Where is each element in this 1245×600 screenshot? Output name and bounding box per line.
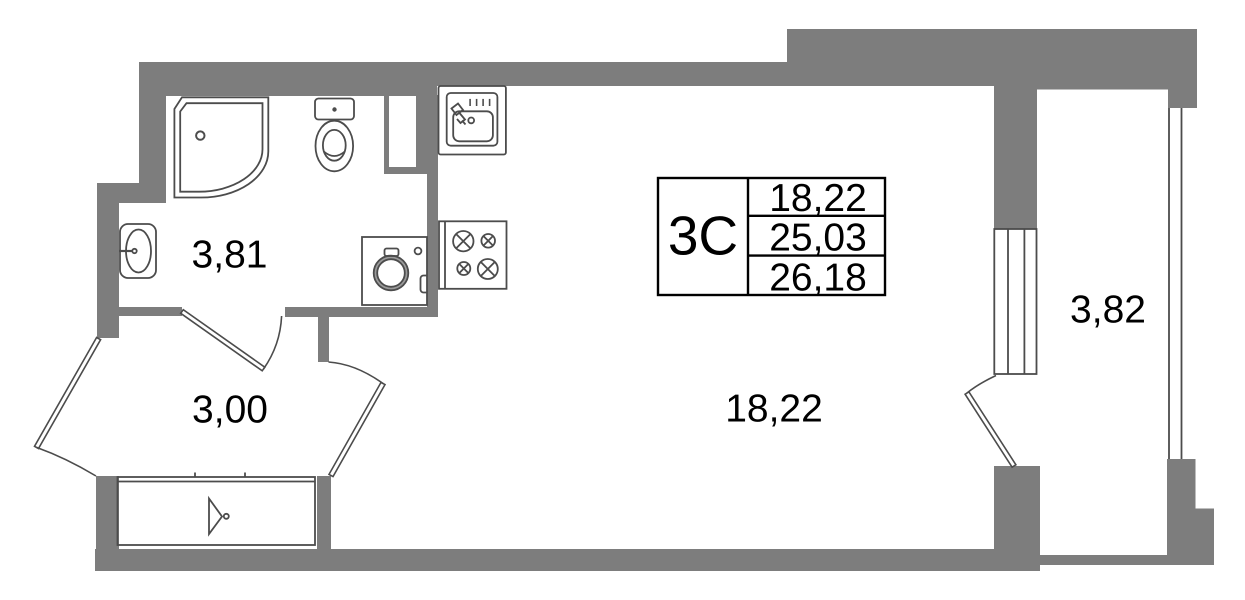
svg-text:3,00: 3,00 (192, 389, 268, 432)
svg-text:26,18: 26,18 (769, 256, 867, 299)
svg-text:18,22: 18,22 (725, 387, 823, 430)
svg-text:18,22: 18,22 (769, 177, 867, 220)
svg-text:25,03: 25,03 (769, 217, 867, 260)
svg-text:3С: 3С (668, 205, 738, 267)
svg-text:3,81: 3,81 (192, 233, 268, 276)
svg-text:3,82: 3,82 (1070, 288, 1146, 331)
